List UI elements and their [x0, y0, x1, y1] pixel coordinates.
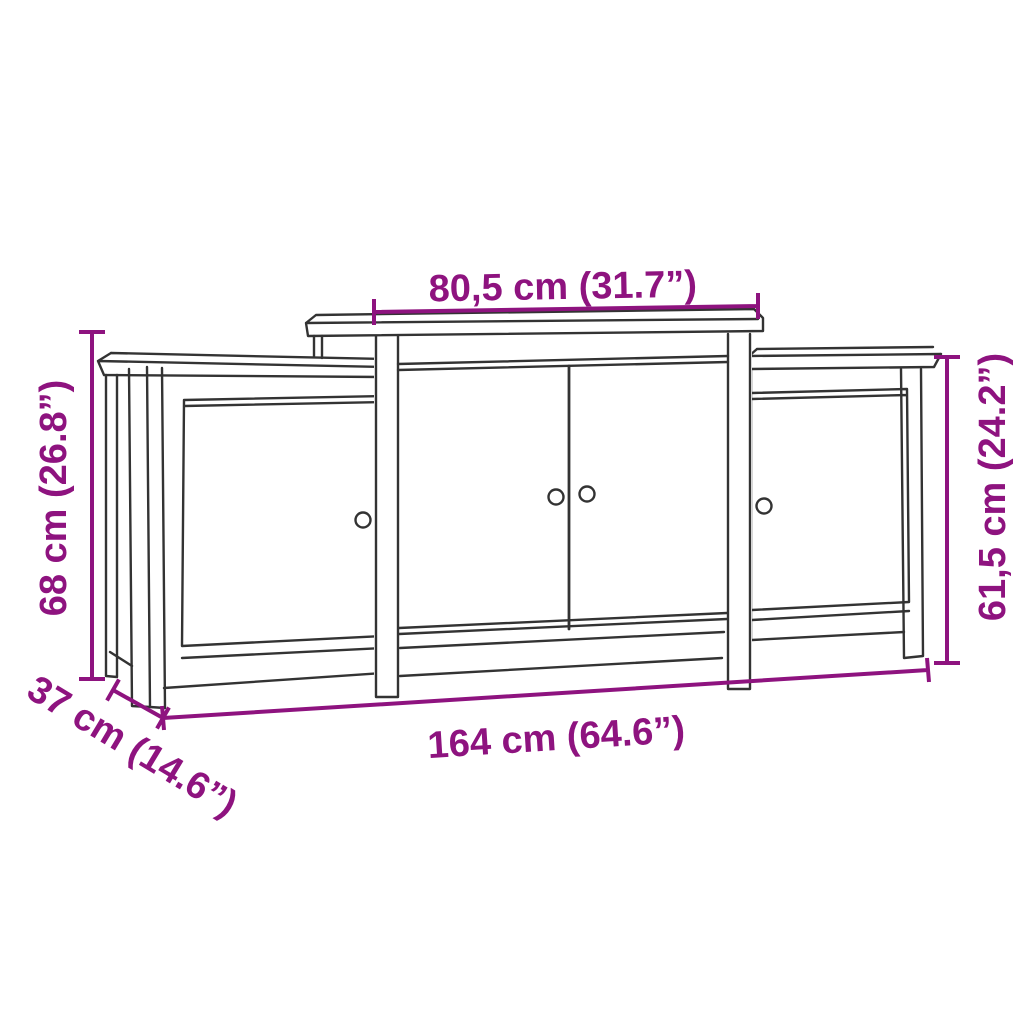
right-cabinet-door — [752, 389, 909, 610]
right-cabinet — [749, 347, 941, 658]
center-cabinet-body-fill — [374, 331, 752, 699]
right-cabinet-front-stile — [901, 369, 923, 658]
left-cabinet-top — [98, 353, 383, 377]
dimension-total-width-label: 164 cm (64.6”) — [426, 709, 686, 767]
furniture-dimension-diagram: 80,5 cm (31.7”) 68 cm (26.8”) 61,5 cm (2… — [0, 0, 1024, 1024]
right-cabinet-top — [749, 347, 941, 369]
dimension-left-height-label: 68 cm (26.8”) — [33, 380, 75, 617]
center-top-riser-posts — [314, 336, 322, 358]
center-right-door-knob — [580, 487, 595, 502]
sideboard-drawing — [98, 309, 941, 708]
left-cabinet-back-leg — [106, 375, 117, 677]
dimension-right-height-line — [934, 357, 960, 663]
center-left-door-knob — [549, 490, 564, 505]
dimension-top-width-label: 80,5 cm (31.7”) — [428, 264, 697, 311]
left-cabinet-door — [182, 396, 383, 646]
left-cabinet — [98, 353, 383, 708]
left-cabinet-side-apron — [110, 652, 132, 666]
left-cabinet-bottom-rail — [164, 648, 383, 688]
left-cabinet-front-stile — [129, 367, 165, 708]
right-door-knob — [757, 499, 772, 514]
right-cabinet-bottom-rail — [752, 611, 909, 640]
center-cabinet — [306, 309, 763, 699]
dimension-right-height-label: 61,5 cm (24.2”) — [972, 353, 1014, 621]
dimension-left-height-line — [79, 332, 105, 679]
left-door-knob — [356, 513, 371, 528]
